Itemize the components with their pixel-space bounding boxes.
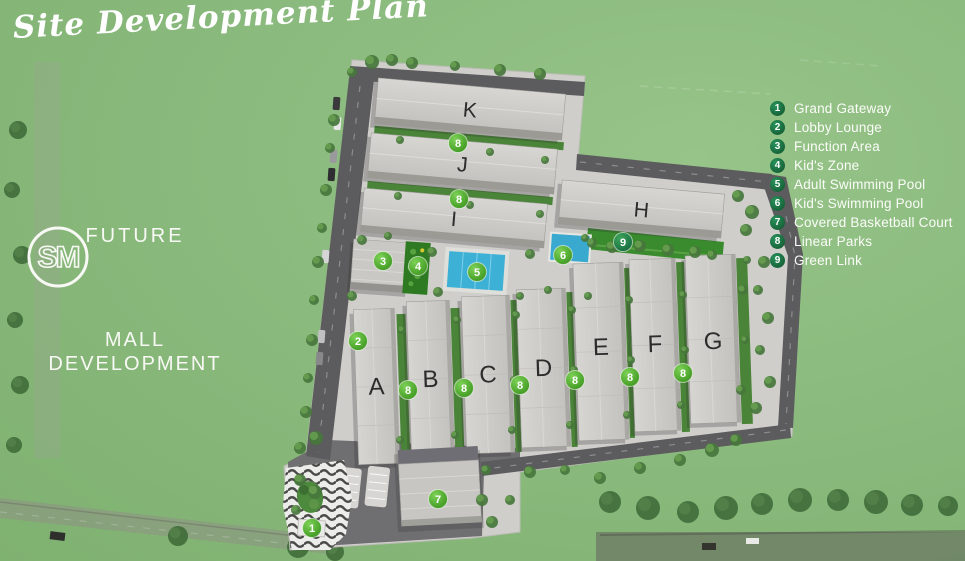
grand-gateway [283,460,352,550]
amenity-marker-4: 4 [409,257,428,276]
amenity-marker-8: 8 [621,368,640,387]
legend-label: Kid's Zone [794,158,859,173]
building-label-d: D [534,355,552,383]
building-f: F [625,258,681,436]
amenity-marker-8: 8 [511,376,530,395]
legend-label: Adult Swimming Pool [794,177,925,192]
svg-text:8: 8 [461,383,467,395]
amenity-marker-8: 8 [399,381,418,400]
building-label-c: C [479,361,497,389]
building-label-g: G [703,328,723,356]
svg-text:9: 9 [620,237,626,249]
svg-text:8: 8 [455,138,461,150]
legend-label: Grand Gateway [794,101,891,116]
development-label: DEVELOPMENT [25,352,245,376]
building-e: E [569,262,629,445]
sm-logo: SM [102,256,168,322]
amenity-marker-2: 2 [349,332,368,351]
amenity-marker-8: 8 [449,134,468,153]
svg-text:8: 8 [456,194,462,206]
building-label-k: K [462,98,478,122]
building-label-h: H [633,198,650,222]
sm-logo-text: SM [38,241,79,274]
building-d: D [512,288,571,452]
legend-item: 1Grand Gateway [770,99,953,118]
legend-number-badge: 3 [770,139,785,154]
amenity-marker-3: 3 [374,252,393,271]
mall-label: MALL [25,328,245,352]
site-development-plan: KJIHABCDEFG 1234567888888889 [0,0,965,561]
amenity-marker-1: 1 [303,519,322,538]
building-label-a: A [368,373,385,401]
legend-number-badge: 2 [770,120,785,135]
svg-text:8: 8 [627,372,633,384]
building-label-j: J [456,153,468,177]
svg-text:7: 7 [435,494,441,506]
building-label-b: B [422,366,439,394]
legend-label: Linear Parks [794,234,872,249]
legend-label: Kid's Swimming Pool [794,196,923,211]
legend-item: 3Function Area [770,137,953,156]
amenity-marker-6: 6 [554,246,573,265]
legend-number-badge: 8 [770,234,785,249]
legend: 1Grand Gateway2Lobby Lounge3Function Are… [770,99,953,270]
svg-text:8: 8 [680,368,686,380]
svg-text:2: 2 [355,336,361,348]
svg-text:3: 3 [380,256,386,268]
svg-text:5: 5 [474,267,480,279]
building-g: G [681,254,741,428]
svg-text:8: 8 [572,375,578,387]
legend-item: 4Kid's Zone [770,156,953,175]
amenity-marker-9: 9 [614,233,633,252]
legend-item: 7Covered Basketball Court [770,213,953,232]
amenity-marker-8: 8 [455,379,474,398]
legend-number-badge: 4 [770,158,785,173]
building-c: C [457,295,515,458]
svg-text:1: 1 [309,523,315,535]
legend-item: 5Adult Swimming Pool [770,175,953,194]
legend-item: 8Linear Parks [770,232,953,251]
legend-item: 6Kid's Swimming Pool [770,194,953,213]
legend-label: Function Area [794,139,880,154]
amenity-marker-8: 8 [674,364,693,383]
legend-number-badge: 6 [770,196,785,211]
amenity-marker-5: 5 [468,263,487,282]
amenity-marker-8: 8 [450,190,469,209]
svg-text:8: 8 [517,380,523,392]
legend-number-badge: 5 [770,177,785,192]
legend-item: 2Lobby Lounge [770,118,953,137]
amenity-marker-7: 7 [429,490,448,509]
svg-text:4: 4 [415,261,422,273]
svg-text:8: 8 [405,385,411,397]
legend-number-badge: 7 [770,215,785,230]
legend-item: 9Green Link [770,251,953,270]
future-mall-block: FUTURE SM MALL DEVELOPMENT [25,224,245,376]
building-label-f: F [647,331,663,358]
legend-label: Covered Basketball Court [794,215,953,230]
legend-number-badge: 9 [770,253,785,268]
building-label-e: E [592,334,609,362]
svg-text:6: 6 [560,250,566,262]
legend-label: Lobby Lounge [794,120,882,135]
amenity-marker-8: 8 [566,371,585,390]
legend-label: Green Link [794,253,862,268]
legend-number-badge: 1 [770,101,785,116]
